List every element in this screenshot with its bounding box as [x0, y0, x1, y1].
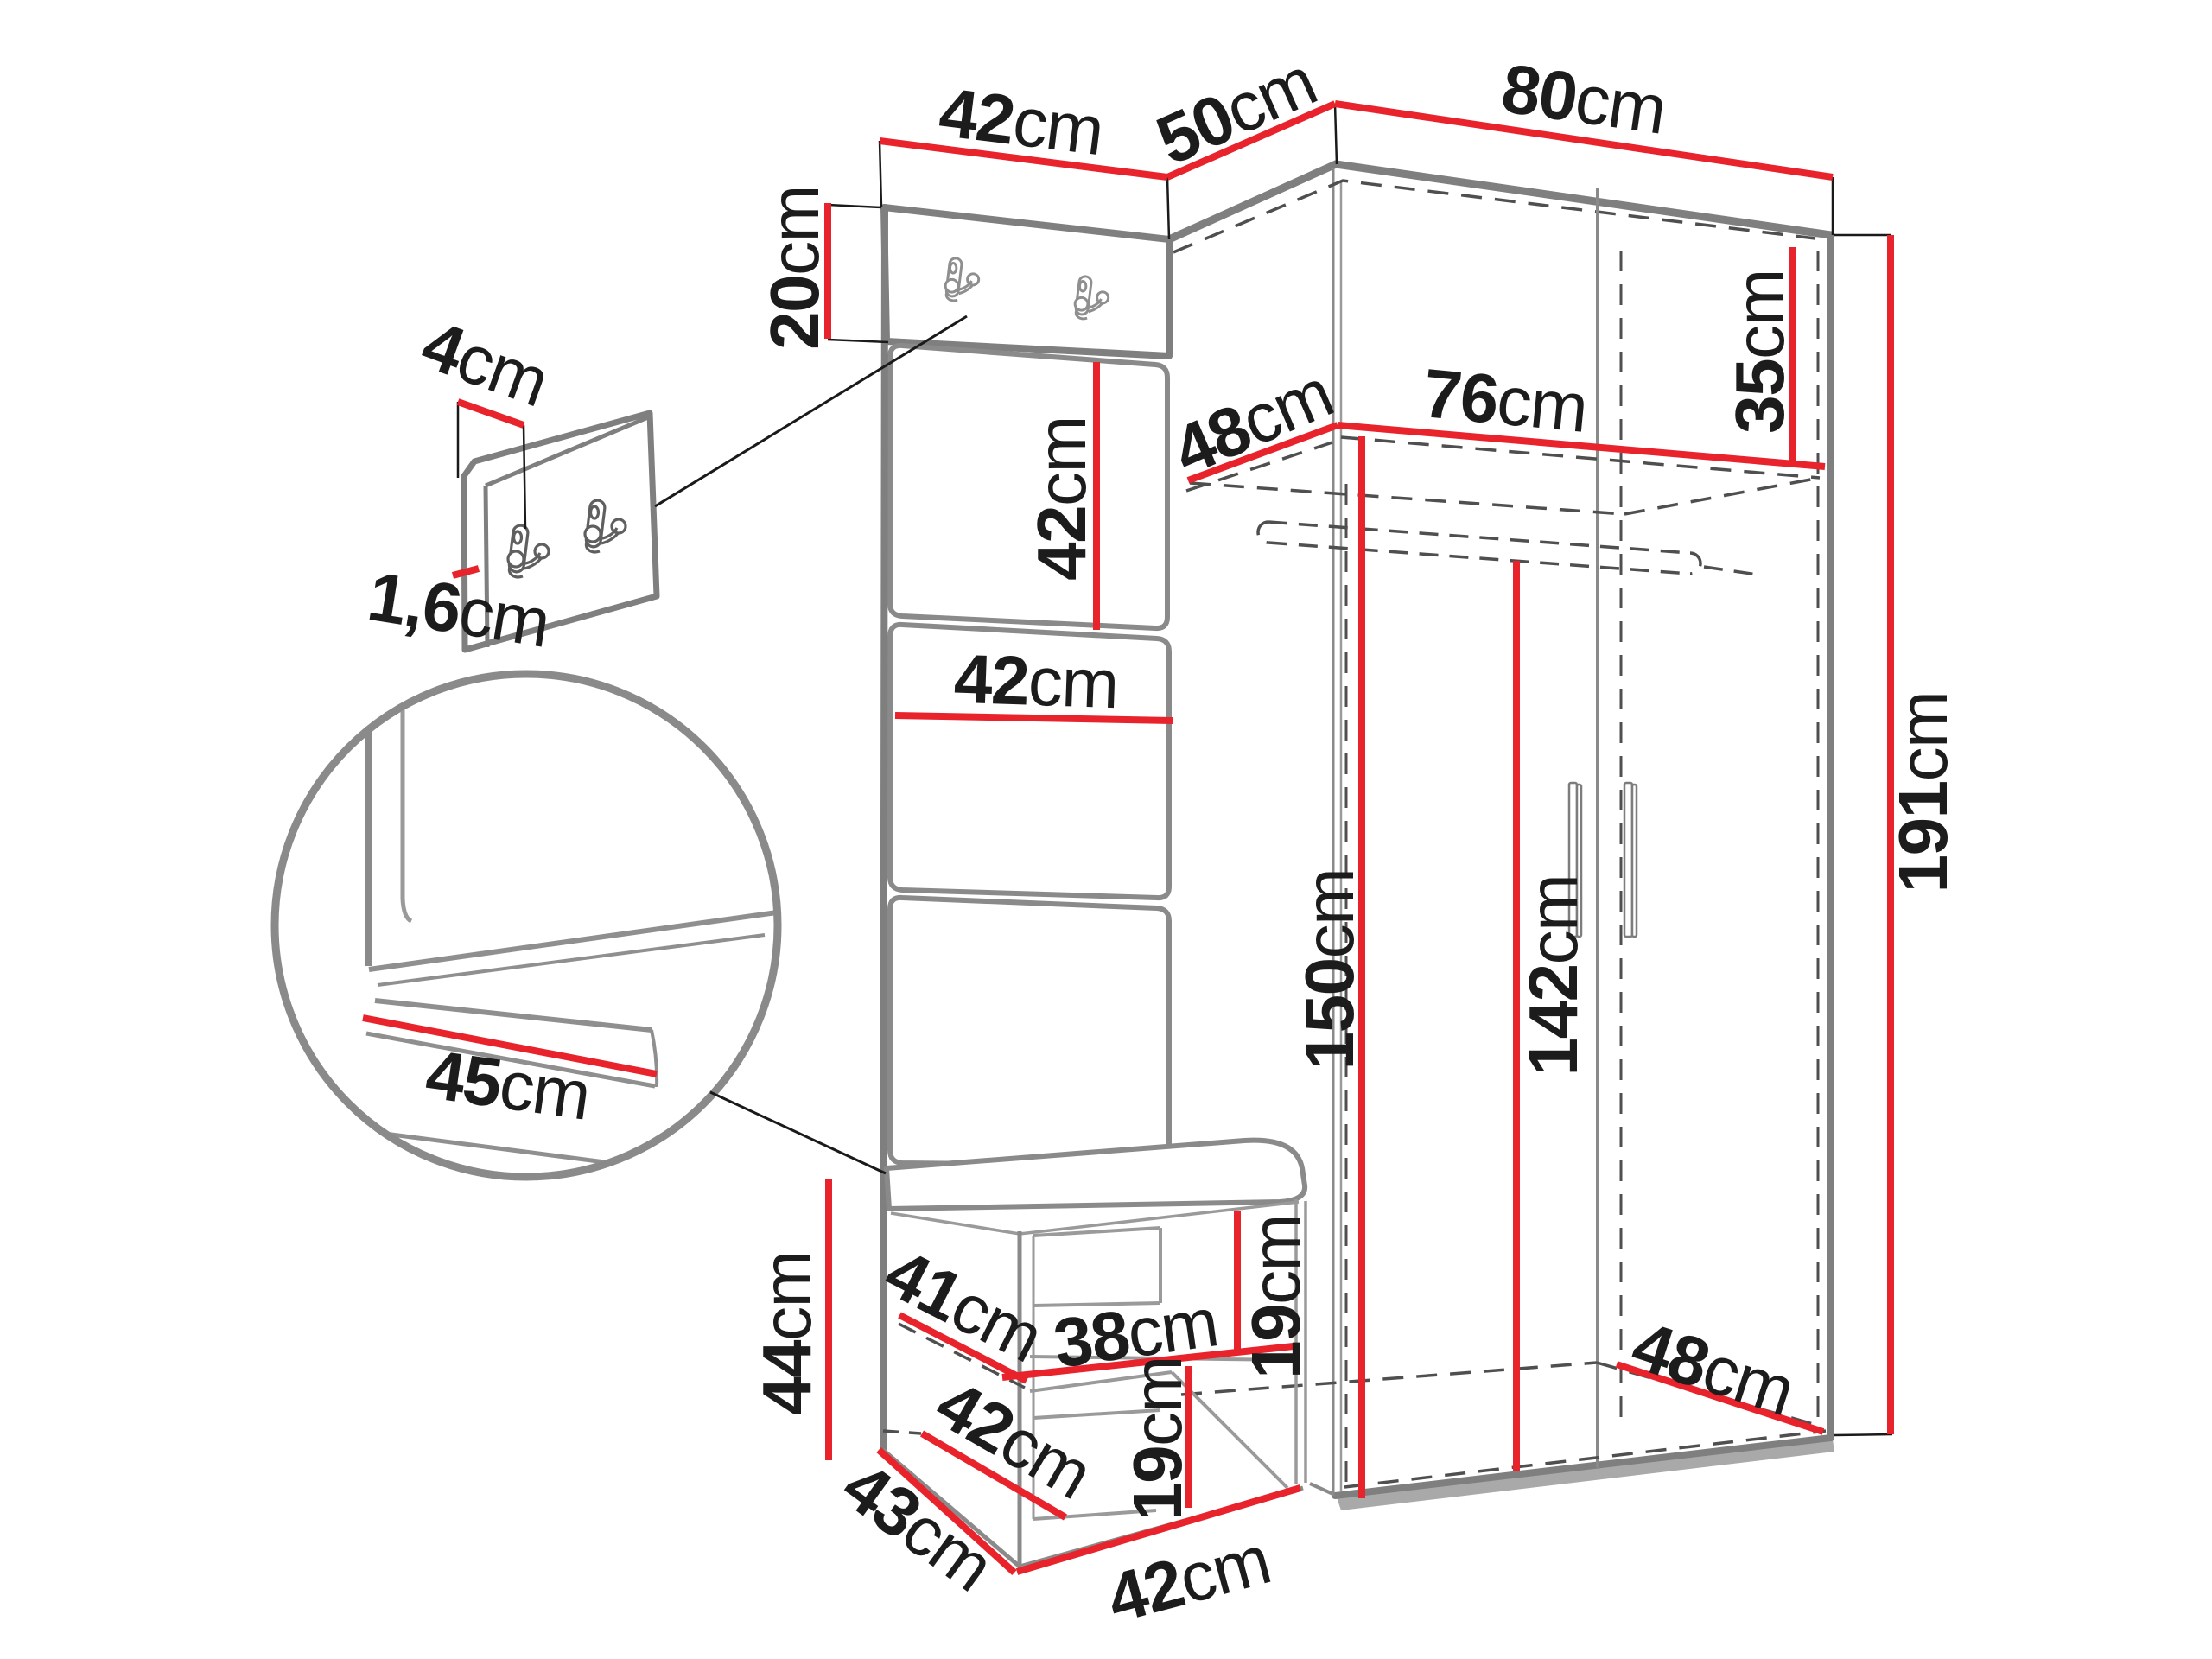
svg-text:44cm: 44cm — [748, 1251, 825, 1415]
svg-text:42cm: 42cm — [953, 640, 1120, 723]
svg-text:42cm: 42cm — [1023, 416, 1100, 581]
svg-text:142cm: 142cm — [1515, 875, 1592, 1077]
svg-text:19cm: 19cm — [1119, 1357, 1196, 1521]
svg-text:20cm: 20cm — [756, 186, 833, 350]
svg-text:76cm: 76cm — [1420, 354, 1590, 447]
svg-text:19cm: 19cm — [1237, 1215, 1314, 1379]
svg-text:35cm: 35cm — [1721, 270, 1798, 434]
svg-text:191cm: 191cm — [1885, 692, 1961, 893]
svg-text:150cm: 150cm — [1291, 869, 1368, 1071]
